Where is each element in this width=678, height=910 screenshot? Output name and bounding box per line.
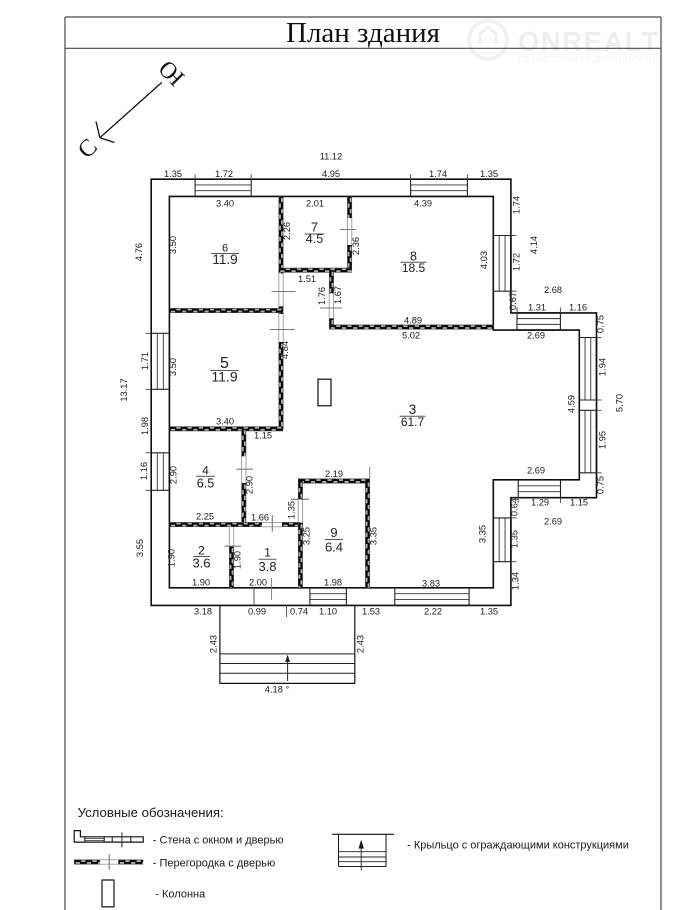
svg-text:2.36: 2.36 (351, 237, 361, 255)
svg-text:2.01: 2.01 (306, 199, 324, 209)
svg-text:11.12: 11.12 (320, 152, 343, 162)
svg-text:3.35: 3.35 (478, 525, 488, 543)
svg-text:ОБЪЯВЛЕНИЯ НЕДВИЖИМОСТИ: ОБЪЯВЛЕНИЯ НЕДВИЖИМОСТИ (518, 54, 656, 64)
svg-text:9: 9 (330, 525, 337, 540)
svg-text:1.90: 1.90 (167, 549, 177, 567)
svg-text:4.59: 4.59 (567, 395, 577, 413)
svg-text:1.35: 1.35 (480, 169, 498, 179)
svg-text:- Перегородка с дверью: - Перегородка с дверью (153, 858, 275, 870)
svg-text:6.5: 6.5 (197, 477, 214, 491)
svg-text:0.75: 0.75 (596, 315, 606, 333)
svg-text:1.53: 1.53 (362, 607, 380, 617)
svg-text:3.40: 3.40 (216, 199, 234, 209)
svg-text:3.40: 3.40 (216, 417, 234, 427)
svg-text:18.5: 18.5 (402, 261, 426, 275)
svg-text:4.5: 4.5 (306, 232, 323, 246)
svg-text:4.14: 4.14 (529, 236, 539, 254)
svg-text:2.43: 2.43 (356, 635, 366, 653)
svg-text:1.10: 1.10 (319, 607, 337, 617)
svg-text:1.90: 1.90 (192, 578, 210, 588)
svg-text:- Крыльцо с ограждающими конст: - Крыльцо с ограждающими конструкциями (407, 840, 629, 852)
svg-text:1.74: 1.74 (429, 169, 447, 179)
svg-text:1.98: 1.98 (140, 417, 150, 435)
svg-text:2.69: 2.69 (544, 517, 562, 527)
svg-text:- Стена с окном и дверью: - Стена с окном и дверью (153, 835, 284, 847)
svg-text:1.71: 1.71 (140, 352, 150, 370)
svg-text:0.99: 0.99 (248, 607, 266, 617)
svg-text:1.98: 1.98 (324, 578, 342, 588)
svg-text:1.16: 1.16 (569, 303, 587, 313)
svg-text:1.72: 1.72 (512, 253, 522, 271)
svg-text:13.17: 13.17 (119, 378, 129, 401)
svg-text:61.7: 61.7 (401, 415, 425, 429)
svg-text:2.00: 2.00 (249, 578, 267, 588)
svg-text:1.16: 1.16 (139, 462, 149, 480)
svg-text:3.35: 3.35 (369, 527, 379, 545)
svg-text:1.15: 1.15 (570, 498, 588, 508)
svg-text:4.39: 4.39 (414, 199, 432, 209)
svg-text:0.75: 0.75 (596, 476, 606, 494)
svg-text:План здания: План здания (286, 17, 440, 49)
svg-text:3.50: 3.50 (168, 236, 178, 254)
svg-text:3.83: 3.83 (422, 579, 440, 589)
svg-text:11.9: 11.9 (211, 369, 237, 385)
svg-text:4.76: 4.76 (134, 243, 144, 261)
svg-text:6.4: 6.4 (325, 540, 343, 555)
svg-text:1.72: 1.72 (215, 169, 233, 179)
svg-text:4.89: 4.89 (404, 316, 422, 326)
svg-text:2.90: 2.90 (169, 466, 179, 484)
svg-text:5.70: 5.70 (615, 394, 625, 412)
svg-text:3.55: 3.55 (135, 539, 145, 557)
svg-text:1.66: 1.66 (251, 513, 269, 523)
svg-text:2.68: 2.68 (544, 285, 562, 295)
svg-text:1: 1 (264, 546, 271, 560)
svg-text:1.67: 1.67 (333, 286, 343, 304)
svg-text:2.19: 2.19 (325, 469, 343, 479)
svg-text:2.69: 2.69 (527, 466, 545, 476)
svg-text:ONREALT: ONREALT (518, 26, 659, 57)
svg-text:5.02: 5.02 (402, 331, 420, 341)
svg-text:4: 4 (202, 464, 209, 478)
svg-text:4.84: 4.84 (280, 341, 290, 359)
svg-text:4.03: 4.03 (479, 251, 489, 269)
svg-text:2.69: 2.69 (527, 331, 545, 341)
svg-text:3.50: 3.50 (168, 358, 178, 376)
svg-text:2.90: 2.90 (245, 476, 255, 494)
svg-text:1.76: 1.76 (317, 287, 327, 305)
svg-text:2.22: 2.22 (424, 607, 442, 617)
svg-text:11.9: 11.9 (212, 252, 237, 267)
svg-text:4.95: 4.95 (322, 169, 340, 179)
svg-text:1.95: 1.95 (598, 431, 608, 449)
svg-text:2.25: 2.25 (196, 512, 214, 522)
svg-text:Условные обозначения:: Условные обозначения: (78, 805, 224, 820)
svg-text:1.74: 1.74 (512, 196, 522, 214)
svg-text:1.35: 1.35 (510, 530, 520, 548)
svg-text:2.26: 2.26 (282, 222, 292, 240)
svg-text:1.15: 1.15 (254, 431, 272, 441)
svg-text:1.35: 1.35 (480, 607, 498, 617)
svg-text:1.35: 1.35 (287, 501, 297, 519)
svg-text:2.43: 2.43 (209, 635, 219, 653)
svg-text:4.18 °: 4.18 ° (265, 685, 290, 695)
svg-text:0.67: 0.67 (508, 292, 518, 310)
svg-text:1.90: 1.90 (233, 551, 243, 569)
svg-text:3.18: 3.18 (194, 607, 212, 617)
svg-text:1.29: 1.29 (531, 498, 549, 508)
svg-text:1.51: 1.51 (298, 274, 316, 284)
svg-text:1.34: 1.34 (511, 572, 521, 590)
svg-text:3.25: 3.25 (302, 527, 312, 545)
svg-text:1.94: 1.94 (598, 358, 608, 376)
svg-text:3.6: 3.6 (192, 556, 210, 571)
svg-text:1.31: 1.31 (528, 303, 546, 313)
svg-text:0.74: 0.74 (290, 607, 308, 617)
svg-text:1.35: 1.35 (164, 169, 182, 179)
svg-text:- Колонна: - Колонна (155, 889, 206, 901)
svg-text:0.64: 0.64 (510, 498, 520, 516)
svg-text:3.8: 3.8 (258, 559, 276, 574)
